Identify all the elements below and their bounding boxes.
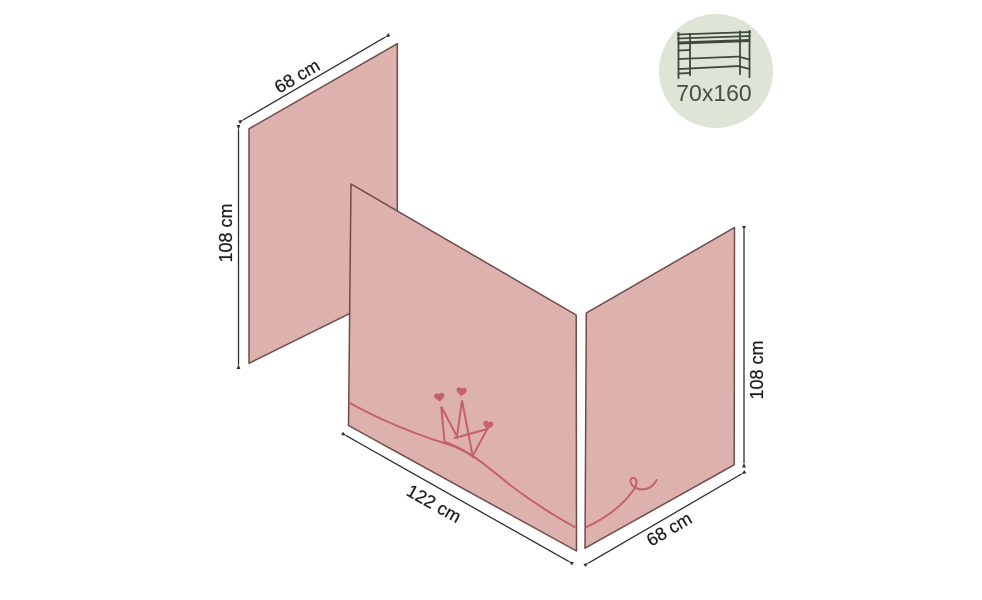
svg-text:70x160: 70x160 xyxy=(676,80,751,106)
svg-text:108 cm: 108 cm xyxy=(216,203,236,262)
svg-text:108 cm: 108 cm xyxy=(747,340,767,399)
